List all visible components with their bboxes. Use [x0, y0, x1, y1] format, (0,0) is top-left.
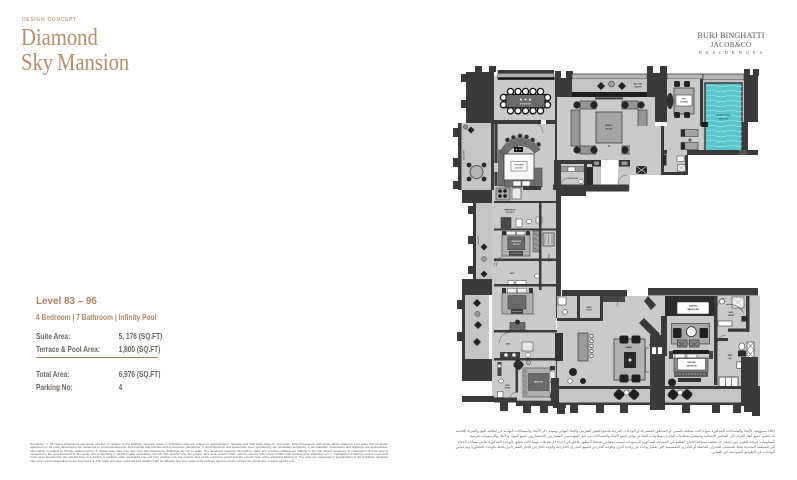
svg-text:WARDROBE: WARDROBE [687, 308, 699, 311]
svg-text:FAMILY: FAMILY [605, 124, 613, 127]
svg-text:SEATER: SEATER [635, 86, 642, 89]
svg-text:DINING ROOM: DINING ROOM [520, 104, 532, 106]
svg-text:MA'AM: MA'AM [728, 314, 734, 317]
svg-text:BALCONY: BALCONY [463, 149, 466, 160]
svg-text:BATH: BATH [729, 311, 734, 314]
svg-text:MAID ROOM: MAID ROOM [505, 209, 516, 212]
svg-text:KITCHEN: KITCHEN [515, 165, 524, 167]
svg-text:MASTER: MASTER [688, 361, 697, 364]
svg-text:PASSAGE: PASSAGE [548, 253, 551, 262]
svg-text:BEDROOM: BEDROOM [512, 241, 522, 243]
svg-text:BALCONY: BALCONY [634, 83, 643, 86]
svg-text:PRIVEE: PRIVEE [505, 388, 511, 390]
svg-text:AND SPA: AND SPA [719, 118, 728, 121]
svg-text:FAMILY: FAMILY [626, 346, 633, 349]
svg-text:BALCONY: BALCONY [477, 235, 480, 245]
svg-text:ENSUITE: ENSUITE [513, 244, 520, 246]
svg-text:ROOM: ROOM [606, 129, 613, 131]
svg-text:BATH: BATH [728, 354, 733, 357]
svg-text:AND BAR: AND BAR [515, 167, 524, 170]
svg-text:LOUNGE: LOUNGE [680, 102, 688, 104]
svg-text:MASTER: MASTER [689, 305, 698, 308]
svg-text:BEDROOM: BEDROOM [534, 382, 543, 384]
svg-text:BEDROOM: BEDROOM [687, 366, 697, 368]
svg-text:PWD ROOM: PWD ROOM [568, 178, 578, 180]
svg-text:BATH: BATH [510, 272, 515, 275]
svg-text:BATH: BATH [506, 343, 511, 346]
svg-text:INFINITY POOL: INFINITY POOL [716, 115, 731, 117]
svg-text:ROOM: ROOM [586, 310, 592, 312]
